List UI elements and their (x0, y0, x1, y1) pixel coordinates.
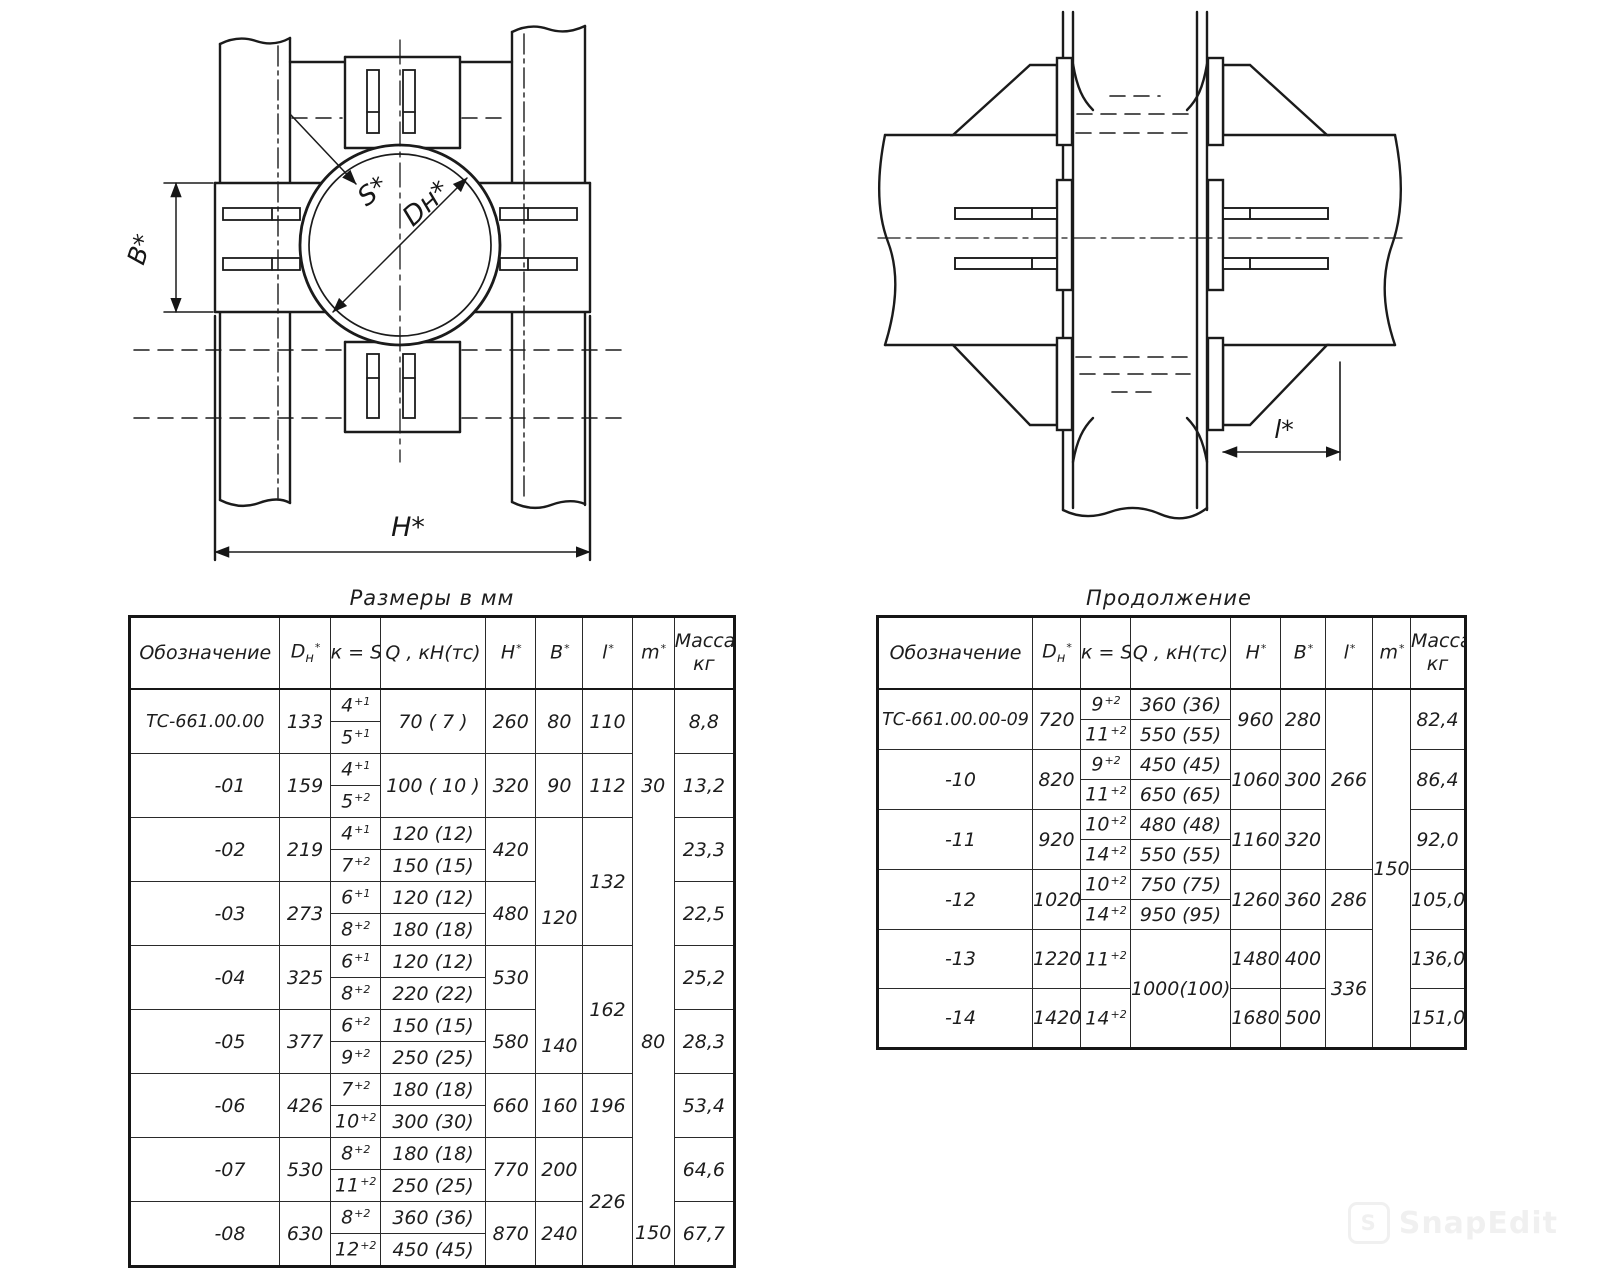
table-cell: 1420 (1033, 989, 1081, 1049)
table-cell: 377 (280, 1010, 330, 1074)
table-cell: -11 (878, 810, 1033, 870)
drawing-sheet: S* Dн* B* H* (0, 0, 1600, 1280)
table-cell: 4+1 (330, 818, 380, 850)
table-cell: -04 (130, 946, 280, 1010)
table-cell: 8+2 (330, 1202, 380, 1234)
table-title-right: Продолжение (876, 586, 1462, 610)
table-cell: 10+2 (1081, 870, 1131, 900)
table-cell: 1680 (1231, 989, 1281, 1049)
table-cell: -03 (130, 882, 280, 946)
table-row: -064267+2180 (18)66016019653,4 (130, 1074, 735, 1106)
column-header: Dн* (280, 617, 330, 690)
table-cell: 336 (1326, 930, 1373, 1049)
table-cell: 325 (280, 946, 330, 1010)
table-cell: ТС-661.00.00 (130, 689, 280, 754)
table-title-left: Размеры в мм (128, 586, 736, 610)
table-cell: 4+1 (330, 689, 380, 722)
table-cell: 23,3 (674, 818, 734, 882)
side-linework (878, 12, 1402, 518)
column-header: Обозначение (878, 617, 1033, 690)
table-cell: 22,5 (674, 882, 734, 946)
table-cell: 162 (583, 946, 632, 1074)
label-bracket-length: l* (1274, 415, 1293, 444)
table-cell: 12+2 (330, 1234, 380, 1267)
table-cell: 650 (65) (1131, 780, 1231, 810)
table-cell: 530 (280, 1138, 330, 1202)
table-cell: 10+2 (330, 1106, 380, 1138)
table-row: ТС-661.00.001334+170 ( 7 )260801108,8 (130, 689, 735, 722)
table-cell: 500 (1281, 989, 1326, 1049)
table-cell: 11+2 (330, 1170, 380, 1202)
table-cell: 820 (1033, 750, 1081, 810)
table-cell: 80 (632, 1010, 674, 1074)
table-cell: 132 (583, 818, 632, 946)
column-header: Q , кН(тс) (380, 617, 485, 690)
table-cell: 11+2 (1081, 930, 1131, 989)
table-cell: 260 (486, 689, 536, 754)
dimension-table-left-section: Размеры в мм ОбозначениеDн*к = S*Q , кН(… (128, 586, 736, 1268)
table-cell: 580 (486, 1010, 536, 1074)
table-cell: 4+1 (330, 754, 380, 786)
table-cell: 140 (536, 946, 583, 1074)
dimension-table-right: ОбозначениеDн*к = S*Q , кН(тс)Н*В*l*m*Ма… (876, 615, 1467, 1050)
table-cell: 530 (486, 946, 536, 1010)
table-cell: 360 (36) (1131, 689, 1231, 720)
table-row: -053776+2150 (15)5808028,3 (130, 1010, 735, 1042)
table-cell: 1480 (1231, 930, 1281, 989)
table-cell: 160 (536, 1074, 583, 1138)
table-cell: 6+1 (330, 946, 380, 978)
table-cell: 64,6 (674, 1138, 734, 1202)
table-cell: -13 (878, 930, 1033, 989)
table-cell: 1020 (1033, 870, 1081, 930)
table-cell: -06 (130, 1074, 280, 1138)
table-cell (632, 689, 674, 754)
table-cell: 100 ( 10 ) (380, 754, 485, 818)
table-cell: 196 (583, 1074, 632, 1138)
table-cell (632, 882, 674, 946)
table-cell: 11+2 (1081, 780, 1131, 810)
column-header: Q , кН(тс) (1131, 617, 1231, 690)
table-cell: 14+2 (1081, 840, 1131, 870)
header-row: ОбозначениеDн*к = S*Q , кН(тс)Н*В*l*m*Ма… (130, 617, 735, 690)
watermark: S SnapEdit (1348, 1202, 1558, 1244)
column-header: l* (583, 617, 632, 690)
dimension-table-right-section: Продолжение ОбозначениеDн*к = S*Q , кН(т… (876, 586, 1462, 1050)
table-cell: 250 (25) (380, 1170, 485, 1202)
table-cell: 250 (25) (380, 1042, 485, 1074)
table-cell: 770 (486, 1138, 536, 1202)
table-cell: 180 (18) (380, 914, 485, 946)
table-cell: 660 (486, 1074, 536, 1138)
table-cell: 180 (18) (380, 1138, 485, 1170)
table-cell: 11+2 (1081, 720, 1131, 750)
table-cell: 8+2 (330, 1138, 380, 1170)
table-cell: 180 (18) (380, 1074, 485, 1106)
table-cell: 320 (486, 754, 536, 818)
table-cell (632, 818, 674, 882)
table-cell: 8+2 (330, 914, 380, 946)
table-cell: 286 (1326, 870, 1373, 930)
table-cell: 226 (583, 1138, 632, 1267)
table-cell: 25,2 (674, 946, 734, 1010)
watermark-logo-icon: S (1348, 1202, 1390, 1244)
table-cell: 150 (632, 1202, 674, 1267)
table-cell: 67,7 (674, 1202, 734, 1267)
table-cell: 6+2 (330, 1010, 380, 1042)
table-cell: 92,0 (1411, 810, 1466, 870)
column-header: Масса,кг (674, 617, 734, 690)
table-cell: -12 (878, 870, 1033, 930)
table-cell: 7+2 (330, 1074, 380, 1106)
column-header: Н* (486, 617, 536, 690)
table-cell: 480 (486, 882, 536, 946)
table-row: -032736+1120 (12)48022,5 (130, 882, 735, 914)
table-cell: 120 (12) (380, 882, 485, 914)
dimension-b (164, 183, 213, 312)
table-cell: 120 (12) (380, 946, 485, 978)
table-cell: 550 (55) (1131, 840, 1231, 870)
pipe-clamp-plan-view: S* Dн* B* H* (120, 0, 640, 580)
header-row: ОбозначениеDн*к = S*Q , кН(тс)Н*В*l*m*Ма… (878, 617, 1466, 690)
table-cell: 1220 (1033, 930, 1081, 989)
watermark-text: SnapEdit (1399, 1206, 1558, 1241)
table-cell: 105,0 (1411, 870, 1466, 930)
column-header: m* (1373, 617, 1411, 690)
table-cell: 159 (280, 754, 330, 818)
table-cell: 112 (583, 754, 632, 818)
table-cell: 266 (1326, 689, 1373, 870)
table-cell: 10+2 (1081, 810, 1131, 840)
table-cell: 960 (1231, 689, 1281, 750)
table-cell: 150 (1373, 689, 1411, 1049)
table-cell: -07 (130, 1138, 280, 1202)
table-cell: 219 (280, 818, 330, 882)
table-cell (632, 1138, 674, 1202)
table-cell: 28,3 (674, 1010, 734, 1074)
table-cell: 120 (536, 818, 583, 946)
table-cell: 870 (486, 1202, 536, 1267)
table-cell: -05 (130, 1010, 280, 1074)
table-cell: -02 (130, 818, 280, 882)
column-header: В* (536, 617, 583, 690)
table-cell: 80 (536, 689, 583, 754)
table-cell: 280 (1281, 689, 1326, 750)
table-cell: 1060 (1231, 750, 1281, 810)
column-header: Н* (1231, 617, 1281, 690)
table-cell: 9+2 (1081, 689, 1131, 720)
table-cell: 150 (15) (380, 850, 485, 882)
table-cell: 150 (15) (380, 1010, 485, 1042)
table-cell: 9+2 (1081, 750, 1131, 780)
table-cell (632, 1074, 674, 1138)
table-cell: 630 (280, 1202, 330, 1267)
table-cell: 550 (55) (1131, 720, 1231, 750)
table-cell: 480 (48) (1131, 810, 1231, 840)
table-cell: 133 (280, 689, 330, 754)
table-cell: 14+2 (1081, 989, 1131, 1049)
table-cell: 86,4 (1411, 750, 1466, 810)
table-cell: 426 (280, 1074, 330, 1138)
table-cell: 136,0 (1411, 930, 1466, 989)
hidden-lines (1076, 96, 1194, 392)
label-clamp-width: B* (122, 231, 159, 268)
table-cell: 5+1 (330, 722, 380, 754)
table-cell: 400 (1281, 930, 1326, 989)
table-cell: 450 (45) (380, 1234, 485, 1267)
table-cell (632, 946, 674, 1010)
table-row: -086308+2360 (36)87024015067,7 (130, 1202, 735, 1234)
table-cell: 8+2 (330, 978, 380, 1010)
column-header: к = S* (1081, 617, 1131, 690)
table-cell: 110 (583, 689, 632, 754)
table-cell: 360 (36) (380, 1202, 485, 1234)
table-cell: 300 (30) (380, 1106, 485, 1138)
table-cell: 5+2 (330, 786, 380, 818)
dimension-table-left: ОбозначениеDн*к = S*Q , кН(тс)Н*В*l*m*Ма… (128, 615, 736, 1268)
table-cell: 1160 (1231, 810, 1281, 870)
table-cell: 220 (22) (380, 978, 485, 1010)
table-cell: 450 (45) (1131, 750, 1231, 780)
plan-linework (134, 26, 626, 560)
pipe-clamp-side-view: l* (860, 0, 1420, 530)
table-cell: -08 (130, 1202, 280, 1267)
table-cell: 920 (1033, 810, 1081, 870)
table-row: -043256+1120 (12)53014016225,2 (130, 946, 735, 978)
table-row: -011594+1100 ( 10 )320901123013,2 (130, 754, 735, 786)
table-cell: 950 (95) (1131, 900, 1231, 930)
table-cell: 13,2 (674, 754, 734, 818)
table-cell: 720 (1033, 689, 1081, 750)
column-header: В* (1281, 617, 1326, 690)
table-cell: 1000(100) (1131, 930, 1231, 1049)
table-cell: 240 (536, 1202, 583, 1267)
table-cell: 6+1 (330, 882, 380, 914)
column-header: m* (632, 617, 674, 690)
table-cell: 200 (536, 1138, 583, 1202)
table-cell: 70 ( 7 ) (380, 689, 485, 754)
table-cell: 750 (75) (1131, 870, 1231, 900)
table-cell: 9+2 (330, 1042, 380, 1074)
column-header: Dн* (1033, 617, 1081, 690)
table-cell: 360 (1281, 870, 1326, 930)
table-cell: ТС-661.00.00-09 (878, 689, 1033, 750)
column-header: к = S* (330, 617, 380, 690)
column-header: l* (1326, 617, 1373, 690)
table-cell: 53,4 (674, 1074, 734, 1138)
table-cell: 273 (280, 882, 330, 946)
table-cell: -14 (878, 989, 1033, 1049)
table-cell: 14+2 (1081, 900, 1131, 930)
label-overall-width: H* (391, 512, 425, 543)
table-row: ТС-661.00.00-097209+2360 (36)96028026615… (878, 689, 1466, 720)
table-cell: 420 (486, 818, 536, 882)
table-cell: 7+2 (330, 850, 380, 882)
table-row: -022194+1120 (12)42012013223,3 (130, 818, 735, 850)
table-cell: 320 (1281, 810, 1326, 870)
table-cell: 120 (12) (380, 818, 485, 850)
column-header: Масса,кг (1411, 617, 1466, 690)
table-cell: 8,8 (674, 689, 734, 754)
table-cell: 151,0 (1411, 989, 1466, 1049)
column-header: Обозначение (130, 617, 280, 690)
table-cell: -10 (878, 750, 1033, 810)
table-cell: 1260 (1231, 870, 1281, 930)
table-cell: 30 (632, 754, 674, 818)
table-cell: -01 (130, 754, 280, 818)
table-cell: 90 (536, 754, 583, 818)
table-cell: 300 (1281, 750, 1326, 810)
table-row: -075308+2180 (18)77020022664,6 (130, 1138, 735, 1170)
table-cell: 82,4 (1411, 689, 1466, 750)
